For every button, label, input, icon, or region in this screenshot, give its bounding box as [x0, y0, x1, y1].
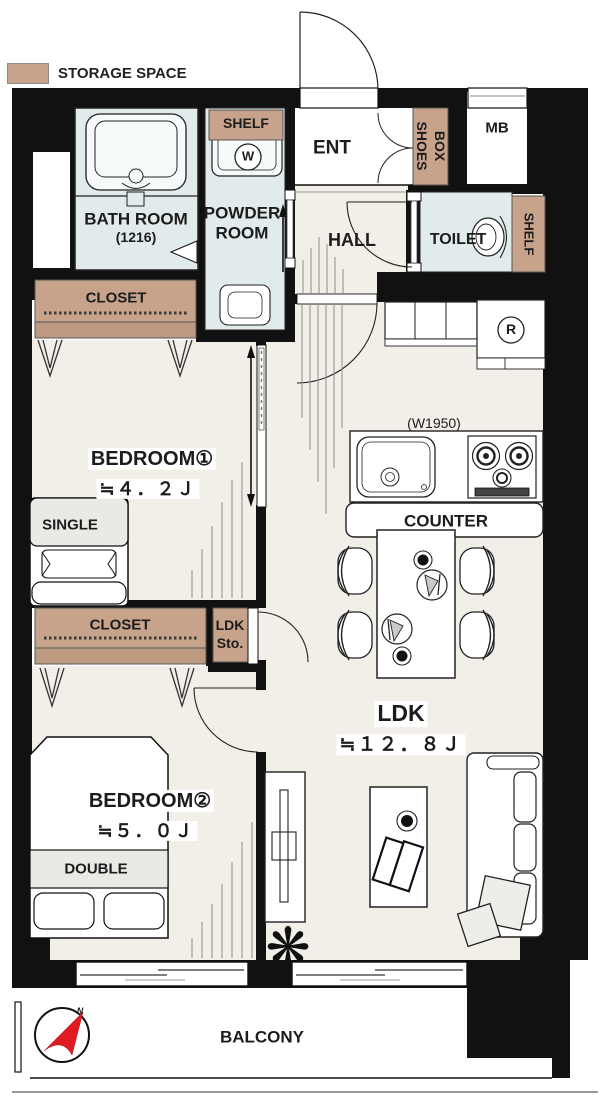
meter-box-label: MB: [485, 121, 508, 138]
double-bed-label: DOUBLE: [64, 862, 127, 879]
storage-legend-label: STORAGE SPACE: [58, 65, 187, 82]
storage-swatch: [7, 63, 49, 84]
hall-label: HALL: [328, 230, 376, 250]
pillow: [32, 582, 126, 604]
ldk-label: LDK: [374, 701, 427, 727]
storage-legend: STORAGE SPACE: [7, 63, 187, 84]
closet1-label: CLOSET: [86, 291, 147, 308]
plant-icon: ❋: [265, 916, 310, 979]
cupboard: [385, 302, 477, 339]
mb-opening: [468, 88, 527, 108]
compass-icon: [35, 1008, 89, 1062]
washer-symbol: W: [242, 150, 254, 165]
ldk-storage-label-1: LDK: [216, 618, 245, 634]
tv-board: [265, 772, 305, 922]
fridge-symbol: R: [506, 322, 516, 338]
pipe-space: [33, 152, 70, 268]
sofa: [458, 753, 543, 946]
entrance-opening: [300, 88, 378, 108]
powder-room-label-1: POWDER: [204, 203, 281, 222]
grill: [475, 488, 529, 496]
sink: [357, 437, 435, 497]
balcony-label: BALCONY: [220, 1027, 304, 1046]
kitchen-width-label: (W1950): [407, 416, 461, 432]
coffee-table: [370, 787, 427, 907]
bedroom2-size: ≒５．０Ｊ: [94, 821, 197, 841]
bedroom1-label: BEDROOM①: [88, 448, 216, 470]
counter-label: COUNTER: [404, 511, 488, 530]
single-bed: [30, 498, 128, 606]
wash-basin: [220, 285, 270, 325]
shoes-box-label-1: SHOES: [413, 121, 429, 170]
ldk-storage-label-2: Sto.: [217, 636, 243, 652]
bathroom-size: (1216): [116, 230, 156, 246]
closet2-label: CLOSET: [90, 618, 151, 635]
pillow: [34, 893, 94, 929]
bedroom1-size: ≒４．２Ｊ: [96, 479, 199, 499]
compass-north-label: N: [77, 1006, 84, 1016]
powder-room-label-2: ROOM: [216, 223, 269, 242]
pillow: [104, 893, 164, 929]
bathroom-label: BATH ROOM: [84, 209, 188, 228]
floor-plan: ❋ STORAGE SPACE SHELF W BATH ROOM (1216)…: [0, 0, 600, 1100]
entrance-label: ENT: [313, 137, 351, 158]
toilet-shelf-label: SHELF: [521, 213, 536, 256]
shoes-box-label-2: BOX: [431, 131, 447, 161]
powder-shelf-label: SHELF: [223, 116, 269, 132]
toilet-label: TOILET: [430, 231, 487, 249]
entrance-door-swing: [300, 12, 378, 90]
bedroom2-label: BEDROOM②: [86, 790, 214, 812]
floor-plan-drawing: ❋: [0, 0, 600, 1100]
single-bed-label: SINGLE: [42, 518, 98, 535]
dining-table: [377, 530, 455, 678]
ldk-size: ≒１２．８Ｊ: [337, 734, 466, 755]
tv: [280, 790, 288, 902]
